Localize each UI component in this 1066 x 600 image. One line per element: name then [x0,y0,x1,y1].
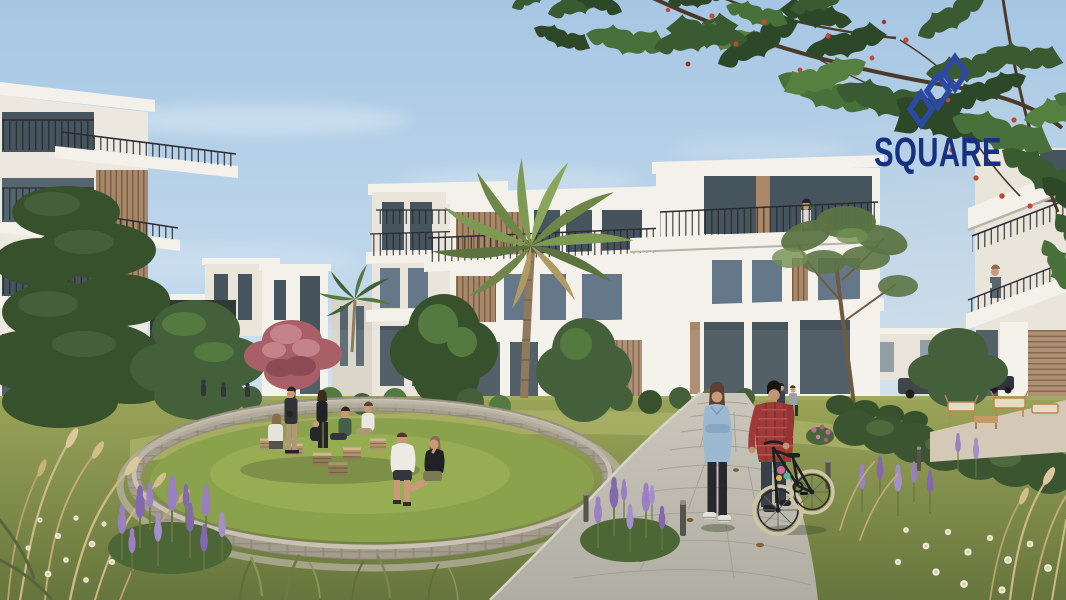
seated-person-head [287,411,294,418]
square-logo-text: SQUARE [874,129,1002,175]
scene-canvas: SQUARE [0,0,1066,600]
render-image: SQUARE [0,0,1066,600]
